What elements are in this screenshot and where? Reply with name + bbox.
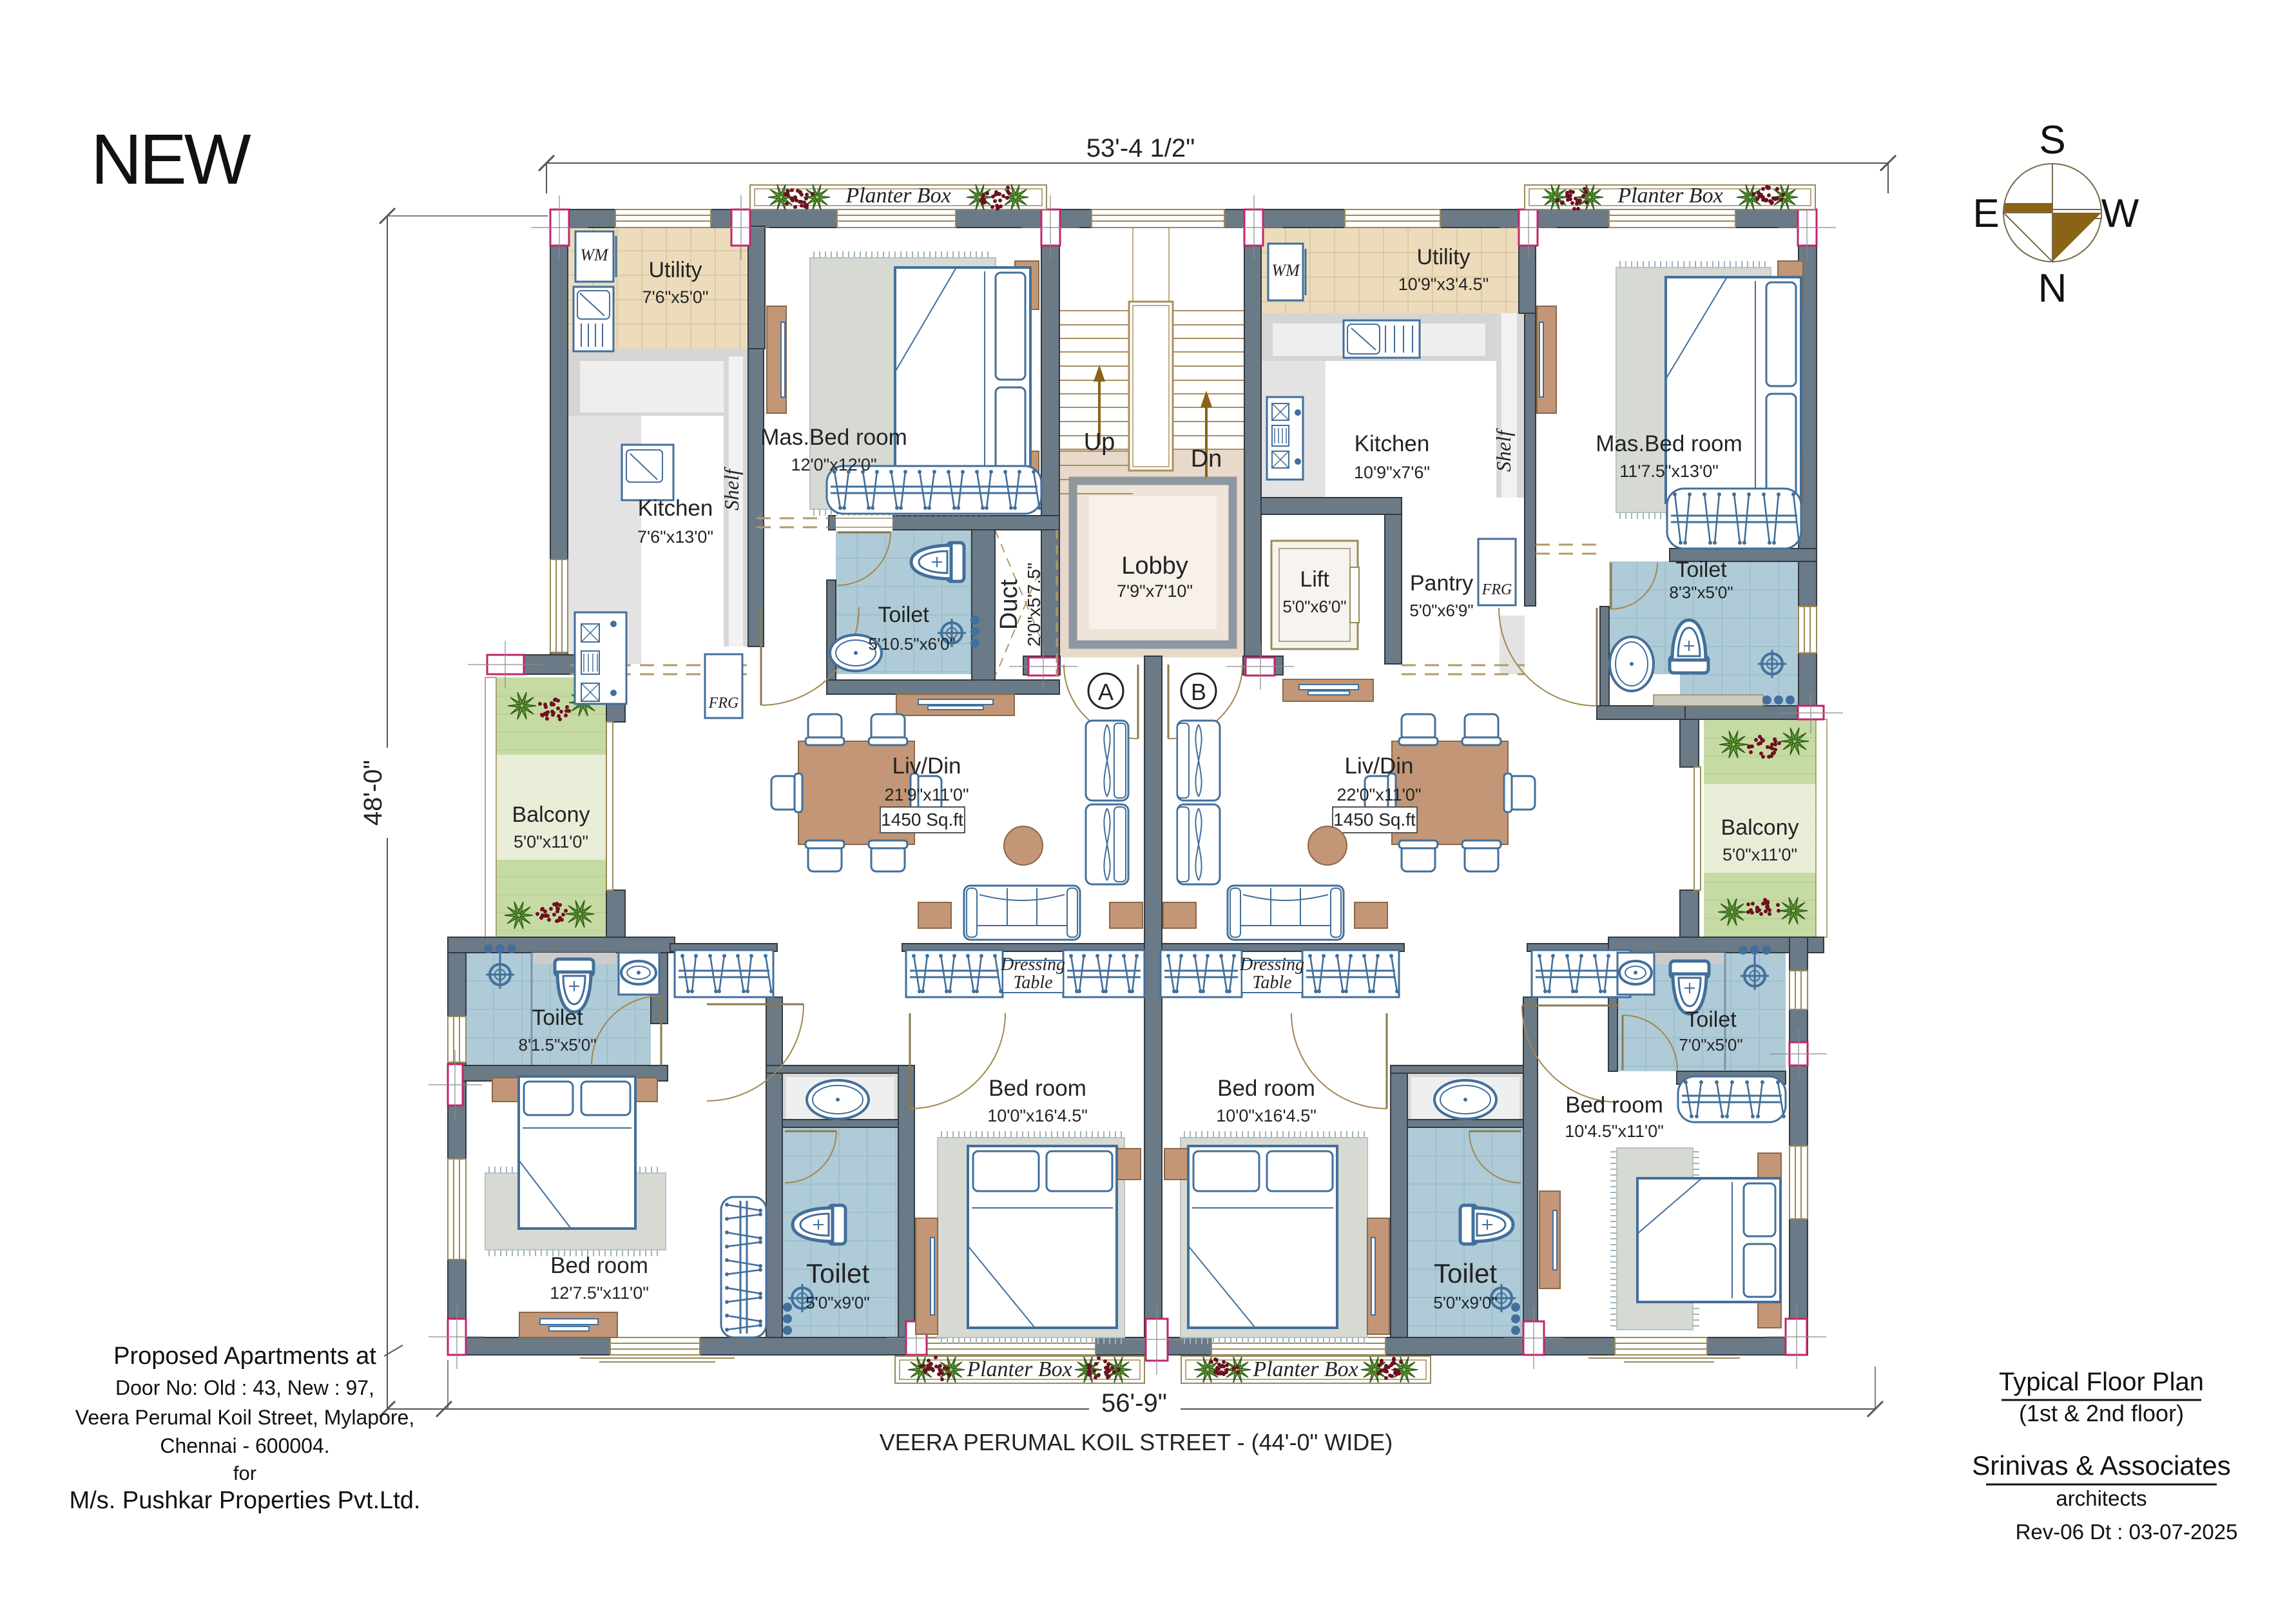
svg-text:Dressing: Dressing: [1000, 955, 1065, 975]
svg-text:1450 Sq.ft: 1450 Sq.ft: [881, 810, 963, 830]
svg-text:Dn: Dn: [1191, 445, 1222, 472]
svg-text:Balcony: Balcony: [1721, 815, 1799, 840]
svg-text:11'7.5"x13'0": 11'7.5"x13'0": [1619, 462, 1719, 481]
svg-text:Typical Floor Plan: Typical Floor Plan: [1999, 1368, 2204, 1396]
svg-text:10'9"x7'6": 10'9"x7'6": [1354, 463, 1430, 482]
svg-text:5'0"x9'0": 5'0"x9'0": [1433, 1293, 1497, 1312]
svg-text:48'-0": 48'-0": [359, 760, 387, 826]
svg-text:7'0"x5'0": 7'0"x5'0": [1679, 1035, 1742, 1054]
svg-text:Planter Box: Planter Box: [1617, 184, 1722, 208]
svg-text:Table: Table: [1013, 973, 1052, 993]
svg-text:Planter Box: Planter Box: [1252, 1357, 1358, 1381]
svg-text:5'0"x9'0": 5'0"x9'0": [806, 1293, 869, 1312]
svg-text:Pantry: Pantry: [1410, 571, 1473, 596]
svg-text:FRG: FRG: [1481, 581, 1512, 598]
svg-text:10'0"x16'4.5": 10'0"x16'4.5": [1216, 1106, 1317, 1125]
svg-text:5'0"x11'0": 5'0"x11'0": [514, 832, 588, 851]
svg-text:Door No: Old : 43, New : 97,: Door No: Old : 43, New : 97,: [115, 1376, 374, 1399]
svg-text:Bed room: Bed room: [1565, 1093, 1663, 1118]
svg-text:10'9"x3'4.5": 10'9"x3'4.5": [1398, 275, 1489, 294]
svg-text:Up: Up: [1084, 429, 1115, 456]
svg-text:Kitchen: Kitchen: [1355, 431, 1430, 456]
svg-text:Bed room: Bed room: [1217, 1076, 1315, 1101]
svg-text:10'4.5"x11'0": 10'4.5"x11'0": [1565, 1122, 1664, 1141]
svg-text:Planter Box: Planter Box: [845, 184, 950, 208]
svg-text:7'6"x13'0": 7'6"x13'0": [637, 527, 713, 547]
svg-text:E: E: [1973, 191, 1999, 236]
svg-text:Bed room: Bed room: [989, 1076, 1086, 1101]
svg-text:VEERA PERUMAL KOIL STREET - (4: VEERA PERUMAL KOIL STREET - (44'-0" WIDE…: [880, 1429, 1393, 1455]
svg-text:Utility: Utility: [1416, 245, 1470, 269]
svg-text:architects: architects: [2056, 1486, 2146, 1510]
svg-text:(1st & 2nd floor): (1st & 2nd floor): [2019, 1400, 2184, 1426]
svg-text:Toilet: Toilet: [1685, 1007, 1737, 1032]
svg-text:12'0"x12'0": 12'0"x12'0": [791, 455, 876, 474]
svg-text:53'-4 1/2": 53'-4 1/2": [1086, 134, 1195, 162]
svg-text:1450 Sq.ft: 1450 Sq.ft: [1333, 810, 1416, 830]
svg-text:Mas.Bed room: Mas.Bed room: [1596, 431, 1742, 456]
svg-text:56'-9": 56'-9": [1101, 1389, 1167, 1417]
svg-text:Shelf: Shelf: [720, 467, 743, 510]
svg-text:Rev-06 Dt : 03-07-2025: Rev-06 Dt : 03-07-2025: [2016, 1520, 2238, 1544]
svg-text:Chennai - 600004.: Chennai - 600004.: [160, 1434, 329, 1457]
svg-text:8'1.5"x5'0": 8'1.5"x5'0": [519, 1035, 597, 1054]
svg-text:Lift: Lift: [1300, 567, 1329, 592]
svg-text:5'0"x6'0": 5'0"x6'0": [1282, 597, 1346, 616]
svg-text:Table: Table: [1252, 973, 1291, 993]
svg-text:FRG: FRG: [708, 695, 739, 712]
svg-text:Dressing: Dressing: [1239, 955, 1304, 975]
svg-text:NEW: NEW: [91, 120, 251, 199]
svg-text:22'0"x11'0": 22'0"x11'0": [1336, 785, 1421, 804]
svg-text:Liv/Din: Liv/Din: [1345, 753, 1414, 779]
svg-text:5'10.5"x6'0": 5'10.5"x6'0": [868, 634, 955, 654]
svg-text:B: B: [1191, 679, 1206, 705]
svg-text:Shelf: Shelf: [1492, 428, 1515, 472]
svg-text:N: N: [2038, 266, 2067, 311]
svg-text:7'9"x7'10": 7'9"x7'10": [1117, 581, 1193, 601]
svg-text:5'0"x11'0": 5'0"x11'0": [1722, 845, 1797, 864]
svg-text:Veera Perumal Koil Street, Myl: Veera Perumal Koil Street, Mylapore,: [75, 1406, 414, 1429]
svg-text:Toilet: Toilet: [1434, 1258, 1497, 1288]
svg-text:Toilet: Toilet: [878, 603, 929, 627]
svg-text:10'0"x16'4.5": 10'0"x16'4.5": [987, 1106, 1088, 1125]
svg-text:Utility: Utility: [648, 258, 702, 282]
svg-text:M/s. Pushkar Properties Pvt.Lt: M/s. Pushkar Properties Pvt.Ltd.: [70, 1487, 421, 1514]
svg-text:21'9"x11'0": 21'9"x11'0": [884, 785, 969, 804]
svg-text:for: for: [233, 1462, 256, 1484]
svg-text:WM: WM: [1271, 261, 1300, 280]
svg-text:8'3"x5'0": 8'3"x5'0": [1669, 583, 1733, 602]
svg-text:Kitchen: Kitchen: [638, 496, 713, 521]
svg-text:W: W: [2101, 191, 2139, 236]
svg-text:Duct: Duct: [996, 579, 1023, 630]
svg-text:Toilet: Toilet: [532, 1006, 583, 1030]
svg-text:Lobby: Lobby: [1121, 552, 1188, 579]
svg-text:Toilet: Toilet: [1675, 558, 1727, 582]
svg-text:Srinivas & Associates: Srinivas & Associates: [1972, 1450, 2231, 1481]
svg-text:Liv/Din: Liv/Din: [892, 753, 961, 779]
svg-text:S: S: [2039, 118, 2065, 162]
svg-text:Toilet: Toilet: [806, 1258, 869, 1288]
svg-text:Proposed Apartments at: Proposed Apartments at: [113, 1343, 376, 1370]
svg-text:7'6"x5'0": 7'6"x5'0": [642, 287, 708, 307]
svg-text:5'0"x6'9": 5'0"x6'9": [1409, 601, 1473, 620]
svg-text:12'7.5"x11'0": 12'7.5"x11'0": [550, 1283, 649, 1303]
svg-text:A: A: [1098, 679, 1114, 705]
svg-text:Bed room: Bed room: [550, 1253, 648, 1278]
svg-text:Mas.Bed room: Mas.Bed room: [760, 425, 907, 450]
svg-text:WM: WM: [580, 246, 609, 264]
svg-text:Balcony: Balcony: [512, 802, 590, 827]
svg-text:Planter Box: Planter Box: [966, 1357, 1072, 1381]
